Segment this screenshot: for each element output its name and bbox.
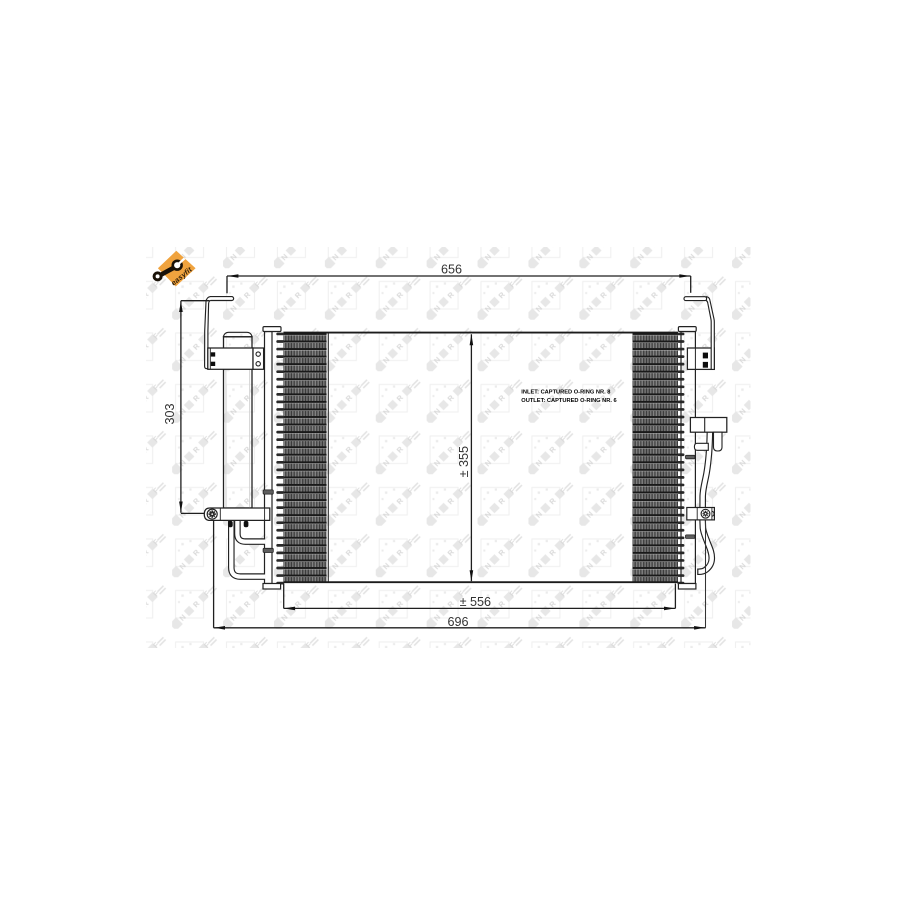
svg-text:OUTLET: CAPTURED O-RING NR. 6: OUTLET: CAPTURED O-RING NR. 6 [521, 398, 616, 404]
svg-text:INLET: CAPTURED O-RING NR. 8: INLET: CAPTURED O-RING NR. 8 [521, 390, 610, 396]
svg-text:303: 303 [163, 403, 177, 424]
svg-text:± 355: ± 355 [457, 446, 471, 477]
svg-text:656: 656 [441, 262, 462, 276]
svg-text:696: 696 [447, 615, 468, 629]
svg-text:± 556: ± 556 [460, 595, 491, 609]
